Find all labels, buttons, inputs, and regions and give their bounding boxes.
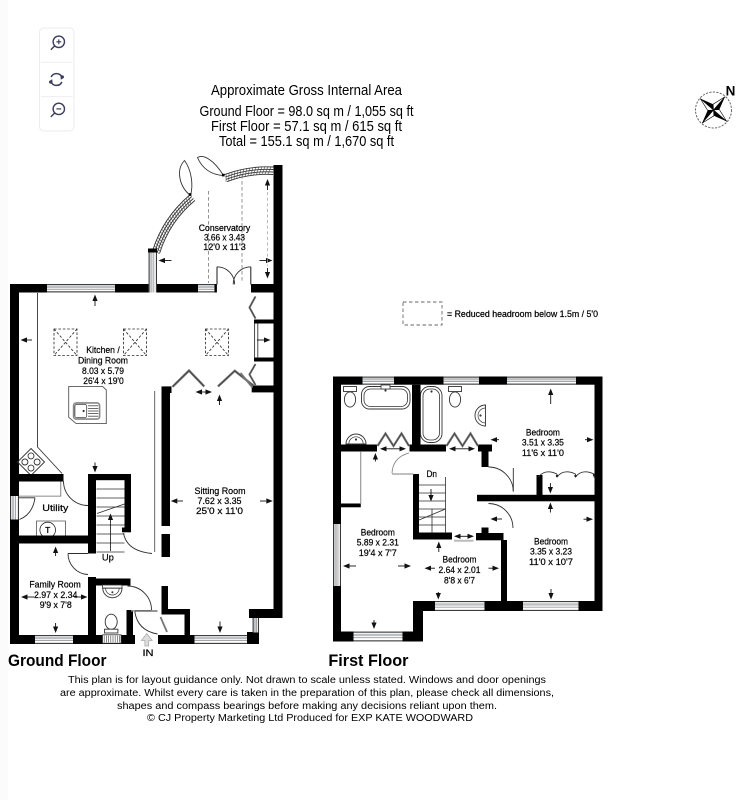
svg-text:Conservatory: Conservatory xyxy=(199,223,251,233)
svg-text:19'4 x 7'7: 19'4 x 7'7 xyxy=(359,548,397,558)
svg-text:T: T xyxy=(45,525,50,535)
svg-text:12'0 x 11'3: 12'0 x 11'3 xyxy=(203,242,246,252)
svg-text:9'9 x 7'8: 9'9 x 7'8 xyxy=(40,600,72,610)
svg-text:5.89 x 2.31: 5.89 x 2.31 xyxy=(357,538,399,548)
svg-text:Sitting Room: Sitting Room xyxy=(195,486,246,496)
svg-text:Total = 155.1 sq m / 1,670 sq: Total = 155.1 sq m / 1,670 sq ft xyxy=(219,133,395,150)
svg-text:8.03 x 5.79: 8.03 x 5.79 xyxy=(82,366,124,376)
svg-text:Bedroom: Bedroom xyxy=(443,555,477,565)
svg-text:Dn: Dn xyxy=(426,469,437,479)
svg-text:Approximate Gross Internal Are: Approximate Gross Internal Area xyxy=(211,82,403,99)
svg-text:Bedroom: Bedroom xyxy=(534,536,568,546)
svg-text:Dining Room: Dining Room xyxy=(78,355,128,365)
svg-text:Ground Floor: Ground Floor xyxy=(8,652,107,670)
svg-text:= Reduced headroom below 1.5m: = Reduced headroom below 1.5m / 5'0 xyxy=(447,309,598,319)
svg-text:3.51 x 3.35: 3.51 x 3.35 xyxy=(522,438,564,448)
svg-text:Kitchen /: Kitchen / xyxy=(86,345,120,355)
svg-text:Family Room: Family Room xyxy=(29,580,81,590)
svg-text:7.62 x 3.35: 7.62 x 3.35 xyxy=(198,496,242,506)
svg-text:shapes and compass bearings be: shapes and compass bearings before makin… xyxy=(117,701,497,712)
svg-text:First Floor: First Floor xyxy=(328,652,409,670)
svg-text:3.35 x 3.23: 3.35 x 3.23 xyxy=(530,547,572,557)
svg-text:© CJ Property Marketing Ltd Pr: © CJ Property Marketing Ltd Produced for… xyxy=(147,713,473,724)
svg-text:This plan is for layout guidan: This plan is for layout guidance only. N… xyxy=(68,675,546,686)
svg-text:2.97 x 2.34: 2.97 x 2.34 xyxy=(34,590,78,600)
svg-text:are approximate. Whilst every: are approximate. Whilst every care is ta… xyxy=(60,688,554,699)
svg-text:N: N xyxy=(726,84,736,99)
svg-text:Bedroom: Bedroom xyxy=(526,427,560,437)
svg-text:Bedroom: Bedroom xyxy=(361,528,395,538)
svg-text:Utility: Utility xyxy=(42,503,68,513)
svg-text:IN: IN xyxy=(143,648,154,658)
svg-text:11'6 x 11'0: 11'6 x 11'0 xyxy=(522,448,564,458)
svg-text:8'8 x 6'7: 8'8 x 6'7 xyxy=(444,575,475,585)
svg-text:3.66 x 3.43: 3.66 x 3.43 xyxy=(204,232,245,242)
svg-text:2.64 x 2.01: 2.64 x 2.01 xyxy=(439,565,481,575)
svg-text:26'4 x 19'0: 26'4 x 19'0 xyxy=(83,376,124,386)
svg-text:11'0 x 10'7: 11'0 x 10'7 xyxy=(529,557,573,567)
svg-text:Up: Up xyxy=(102,553,114,563)
svg-text:25'0 x 11'0: 25'0 x 11'0 xyxy=(196,506,243,516)
